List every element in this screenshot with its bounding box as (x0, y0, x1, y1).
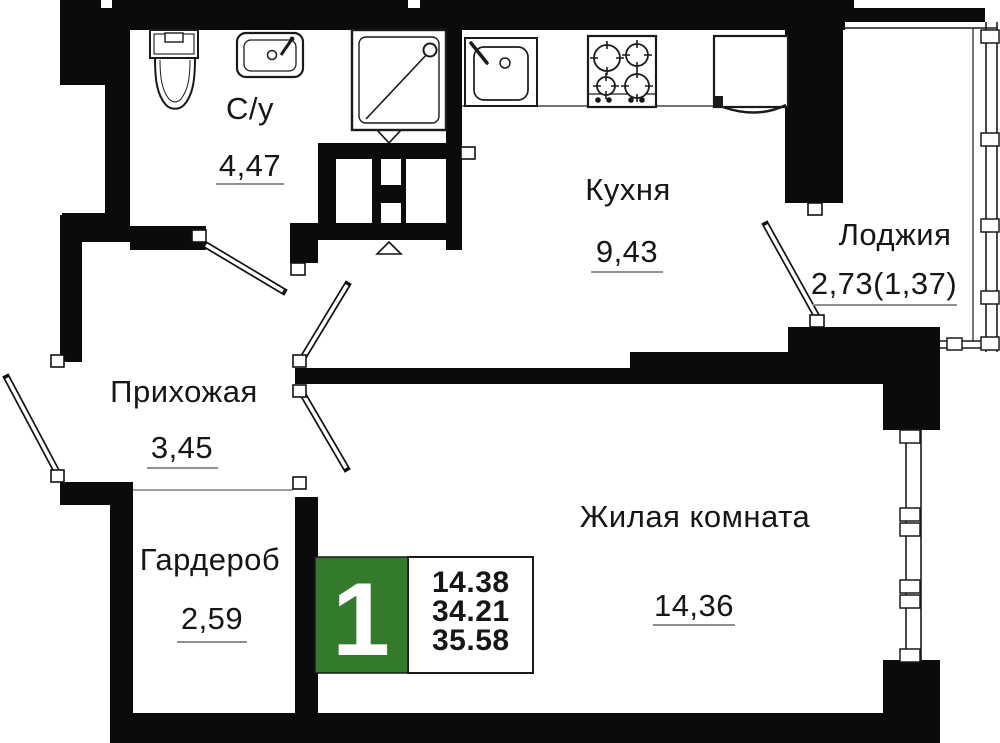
wall-segment (110, 505, 133, 743)
stove-icon (588, 36, 656, 107)
glazing-mark (981, 30, 999, 43)
floor-plan: С/у 4,47 Кухня 9,43 Лоджия 2,73(1,37) Пр… (0, 0, 1000, 743)
window-mark (900, 595, 920, 608)
window-mark (900, 508, 920, 521)
door-frame-mark (293, 385, 306, 397)
window-marks (900, 430, 920, 662)
glazing-mark (981, 133, 999, 146)
shaft-cell (336, 159, 372, 223)
wall-segment (110, 713, 940, 743)
living-room-door-swing (301, 391, 346, 468)
room-label-wardrobe: Гардероб (140, 542, 280, 577)
door-frame-mark (293, 477, 306, 489)
kitchen-door-swing (301, 285, 347, 361)
shower-icon (352, 30, 446, 130)
room-label-bathroom: С/у (226, 91, 274, 126)
glazing-mark (981, 291, 999, 304)
door-frame-mark (808, 203, 822, 215)
door-frame-mark (293, 355, 306, 367)
kitchen-sink-icon (465, 38, 537, 106)
door-frame-mark (51, 355, 64, 367)
entrance-door-swing (7, 378, 57, 472)
bathroom-door-swing (206, 245, 283, 291)
room-label-kitchen: Кухня (585, 172, 670, 207)
wall-segment (883, 660, 940, 743)
shaft-cell (381, 159, 401, 185)
room-label-living-room: Жилая комната (580, 499, 811, 534)
room-area-hallway: 3,45 (151, 430, 213, 465)
loggia-glazing (843, 22, 997, 352)
room-area-wardrobe: 2,59 (181, 601, 243, 636)
wall-segment (60, 8, 845, 30)
vent-up-icon (377, 242, 401, 254)
floor-plan-canvas: С/у 4,47 Кухня 9,43 Лоджия 2,73(1,37) Пр… (0, 0, 1000, 743)
door-frame-mark (51, 470, 64, 482)
wall-segment (446, 30, 462, 250)
door-swings (7, 225, 816, 472)
window-mark (900, 580, 920, 593)
door-frame-mark (810, 315, 824, 327)
room-label-loggia: Лоджия (839, 217, 952, 252)
living-room-window (906, 430, 921, 662)
wall-segment (105, 82, 130, 215)
room-area-kitchen: 9,43 (596, 234, 658, 269)
door-frame-mark (461, 147, 475, 159)
glazing-mark (947, 338, 962, 350)
window-mark (900, 523, 920, 536)
vent-down-icon (377, 130, 401, 143)
glazing-mark (981, 219, 999, 232)
badge-area-line-3: 35.58 (432, 624, 510, 657)
loggia-door-swing (766, 225, 816, 315)
door-frame-mark (192, 230, 206, 242)
room-area-bathroom: 4,47 (219, 148, 281, 183)
room-area-living-room: 14,36 (654, 588, 734, 623)
badge-rooms-number: 1 (332, 562, 390, 678)
wall-segment (112, 0, 408, 8)
wall-segment (883, 355, 940, 430)
wall-segment (295, 368, 630, 384)
wall-segment (845, 8, 985, 22)
wall-segment (290, 223, 318, 263)
room-label-hallway: Прихожая (110, 374, 258, 409)
window-mark (900, 649, 920, 662)
fridge-icon (714, 36, 788, 113)
toilet-icon (150, 30, 198, 109)
apartment-badge: 1 14.38 34.21 35.58 (315, 557, 533, 678)
washbasin-icon (237, 33, 303, 77)
wall-segment (60, 8, 130, 85)
window-mark (900, 430, 920, 443)
wall-segment (60, 215, 82, 362)
glazing-mark (981, 337, 999, 350)
door-frame-mark (291, 263, 305, 275)
shaft-cell (381, 203, 401, 223)
wall-segment (60, 0, 101, 8)
wall-segment (420, 0, 824, 8)
room-area-loggia: 2,73(1,37) (811, 266, 957, 301)
wall-segment (785, 8, 843, 203)
shaft-cell (406, 159, 446, 223)
wall-segment (60, 482, 133, 505)
